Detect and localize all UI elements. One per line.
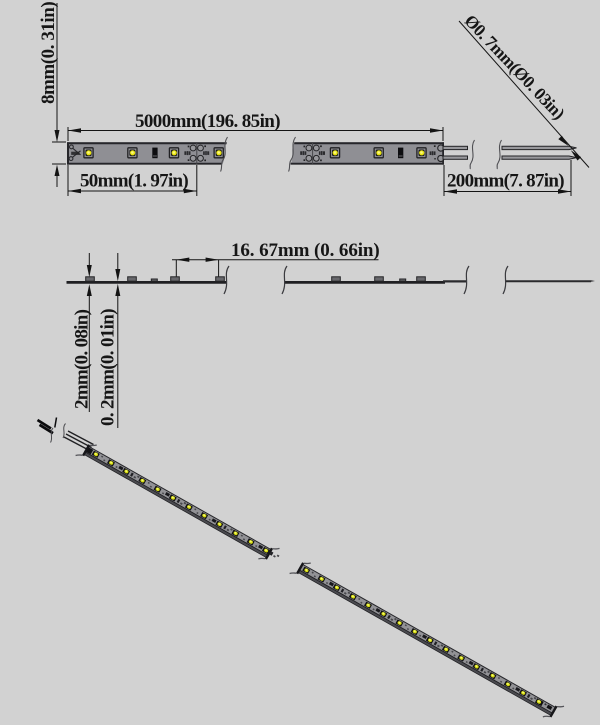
svg-text:200mm(7. 87in): 200mm(7. 87in): [447, 171, 564, 192]
svg-text:8mm(0. 31in): 8mm(0. 31in): [38, 2, 59, 104]
svg-text:5000mm(196. 85in): 5000mm(196. 85in): [135, 111, 280, 132]
svg-text:50mm(1. 97in): 50mm(1. 97in): [80, 171, 188, 192]
svg-text:0. 2mm(0. 01in): 0. 2mm(0. 01in): [98, 309, 119, 426]
svg-text:2mm(0. 08in): 2mm(0. 08in): [72, 309, 93, 409]
svg-text:16. 67mm (0. 66in): 16. 67mm (0. 66in): [231, 240, 380, 261]
